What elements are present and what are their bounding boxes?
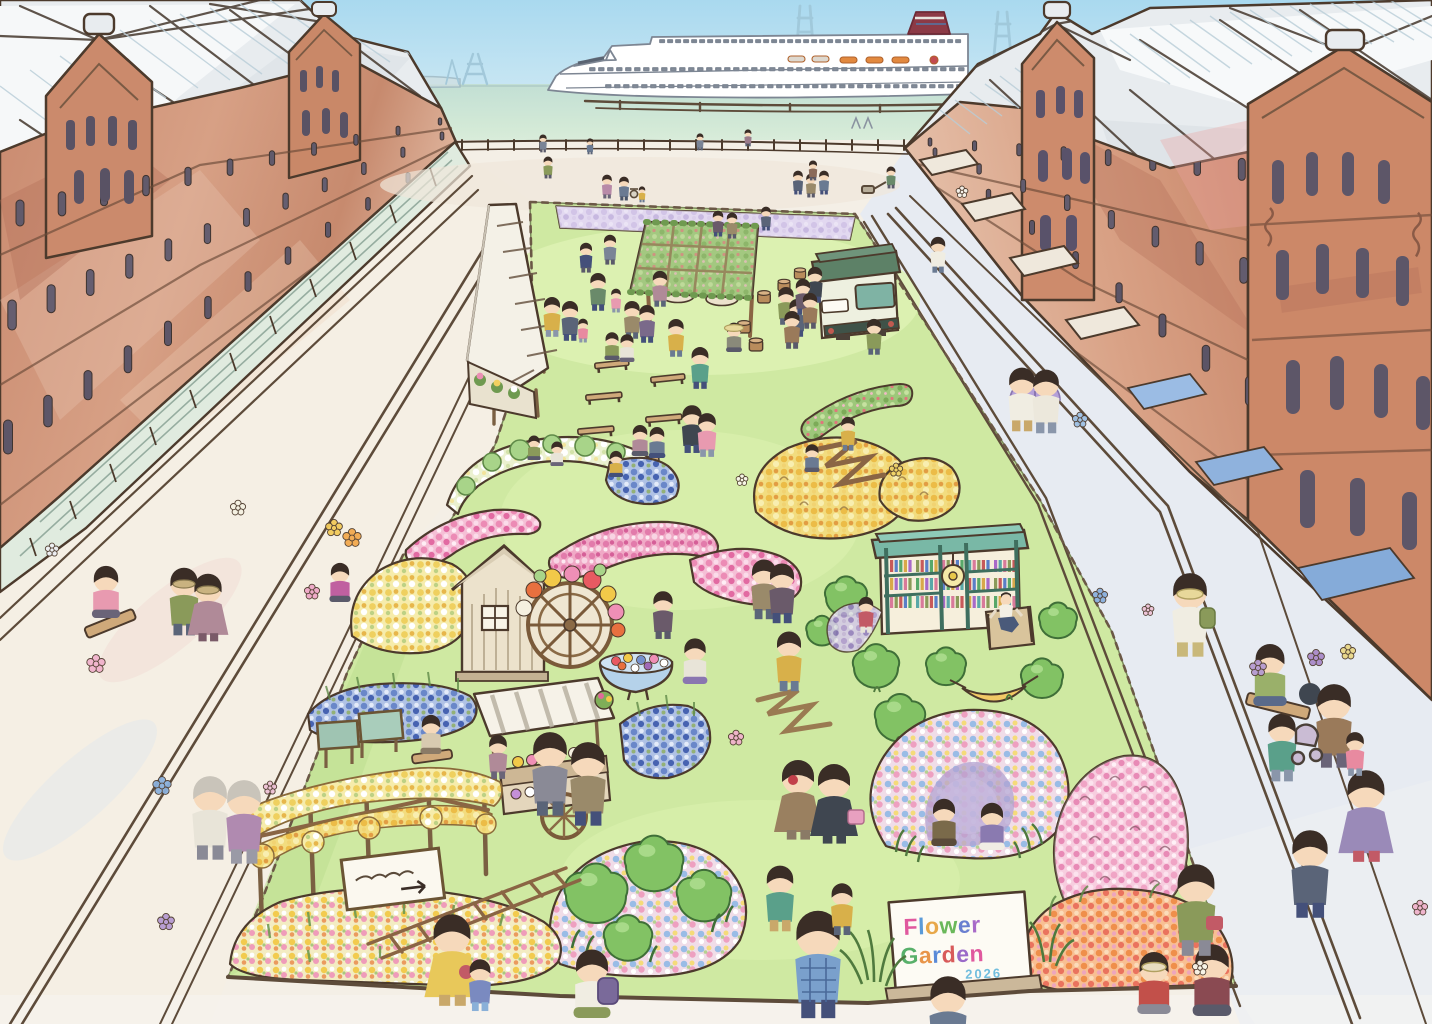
svg-text:Garden: Garden	[900, 940, 984, 969]
svg-text:2026: 2026	[965, 965, 1002, 981]
svg-text:Flower: Flower	[903, 911, 981, 940]
